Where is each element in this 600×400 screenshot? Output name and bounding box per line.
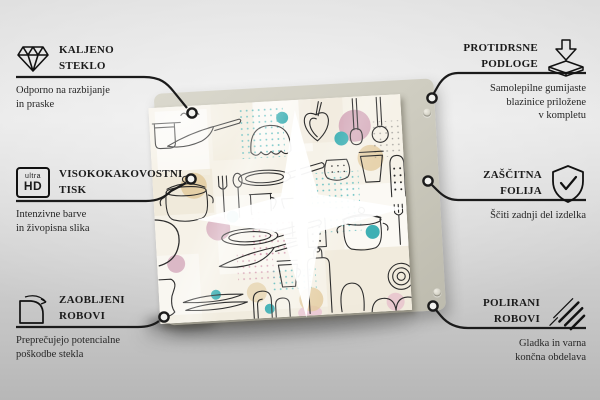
anti-slip-pads-icon [546,37,586,77]
callout-subtitle: Samolepilne gumijaste blazinice priložen… [376,82,586,123]
callout-rounded-edges: ZAOBLJENI ROBOVI Preprečujejo potencialn… [16,292,192,361]
callout-title: POLIRANI ROBOVI [483,296,540,327]
callout-polished-edges: POLIRANI ROBOVI Gladka in varna končna o… [376,295,586,364]
callout-title: ZAŠČITNA FOLIJA [483,168,542,199]
callout-title: VISOKOKAKOVOSTNI TISK [59,167,183,198]
rounded-corner-icon [16,292,50,326]
callout-anti-slip-pads: PROTIDRSNE PODLOGE Samolepilne gumijaste… [376,40,586,123]
callout-title: PROTIDRSNE PODLOGE [463,41,538,72]
callout-title: KALJENO STEKLO [59,43,114,74]
callout-subtitle: Gladka in varna končna obdelava [376,337,586,364]
callout-subtitle: Intenzivne barve in živopisna slika [16,208,192,235]
callout-high-quality-print: ultra HD VISOKOKAKOVOSTNI TISK Intenzivn… [16,166,192,235]
callout-title: ZAOBLJENI ROBOVI [59,293,125,324]
callout-subtitle: Preprečujejo potencialne poškodbe stekla [16,334,192,361]
callout-subtitle: Odporno na razbijanje in praske [16,84,192,111]
polished-edges-icon [548,293,586,331]
shield-check-icon [550,164,586,204]
ultra-hd-icon: ultra HD [16,167,50,198]
callout-subtitle: Ščiti zadnji del izdelka [376,209,586,223]
callout-protective-film: ZAŠČITNA FOLIJA Ščiti zadnji del izdelka [376,167,586,223]
product-infographic: KALJENO STEKLO Odporno na razbijanje in … [0,0,600,400]
callout-tempered-glass: KALJENO STEKLO Odporno na razbijanje in … [16,42,192,111]
diamond-icon [16,45,50,73]
